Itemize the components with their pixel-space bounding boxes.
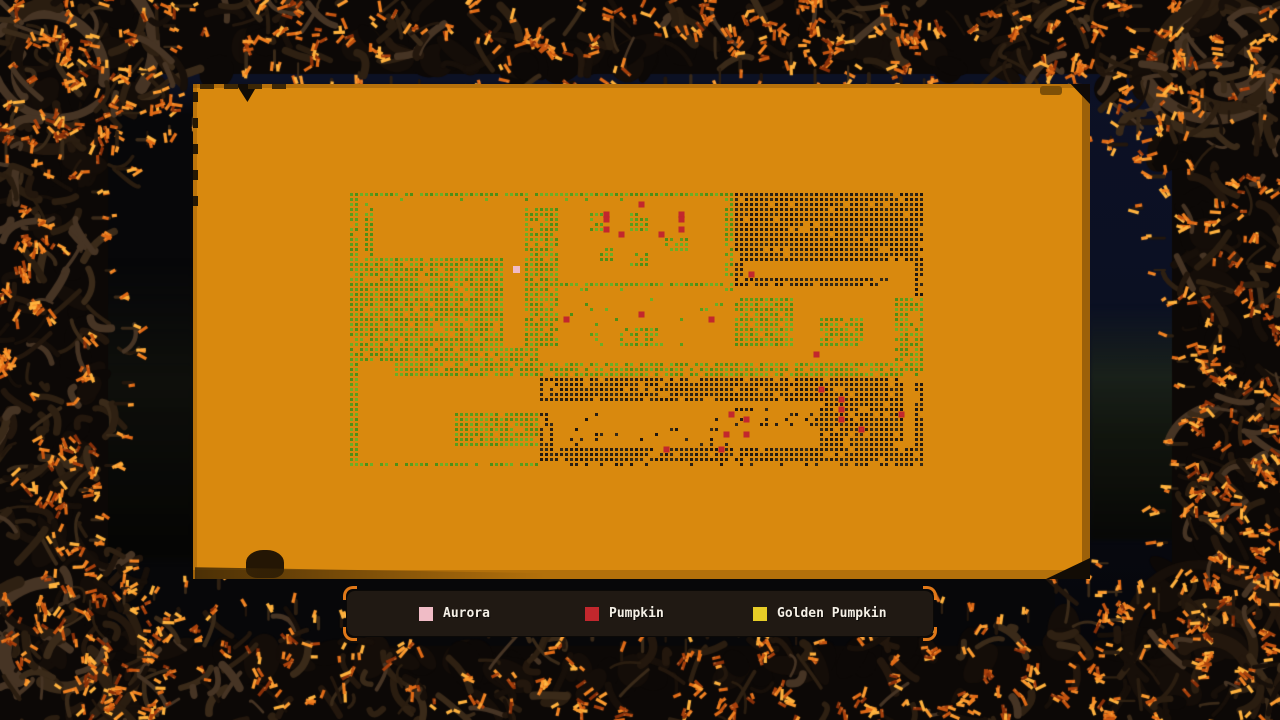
crop-legend-bar: Aurora Pumpkin Golden Pumpkin	[346, 590, 934, 637]
legend-label: Aurora	[443, 606, 490, 621]
legend-label: Golden Pumpkin	[777, 606, 887, 621]
aurora-swatch-icon	[419, 607, 433, 621]
panel-torn-blob	[1040, 86, 1062, 95]
panel-torn-edge-left	[193, 92, 198, 212]
legend-item-aurora: Aurora	[419, 591, 490, 636]
crop-map-canvas[interactable]	[348, 191, 928, 473]
pumpkin-swatch-icon	[585, 607, 599, 621]
legend-label: Pumpkin	[609, 606, 664, 621]
legend-item-golden-pumpkin: Golden Pumpkin	[753, 591, 887, 636]
golden-pumpkin-swatch-icon	[753, 607, 767, 621]
game-screen: Aurora Pumpkin Golden Pumpkin	[0, 0, 1280, 720]
legend-item-pumpkin: Pumpkin	[585, 591, 664, 636]
legend-corner-curl-icon	[343, 586, 357, 600]
panel-torn-edge	[200, 84, 286, 89]
